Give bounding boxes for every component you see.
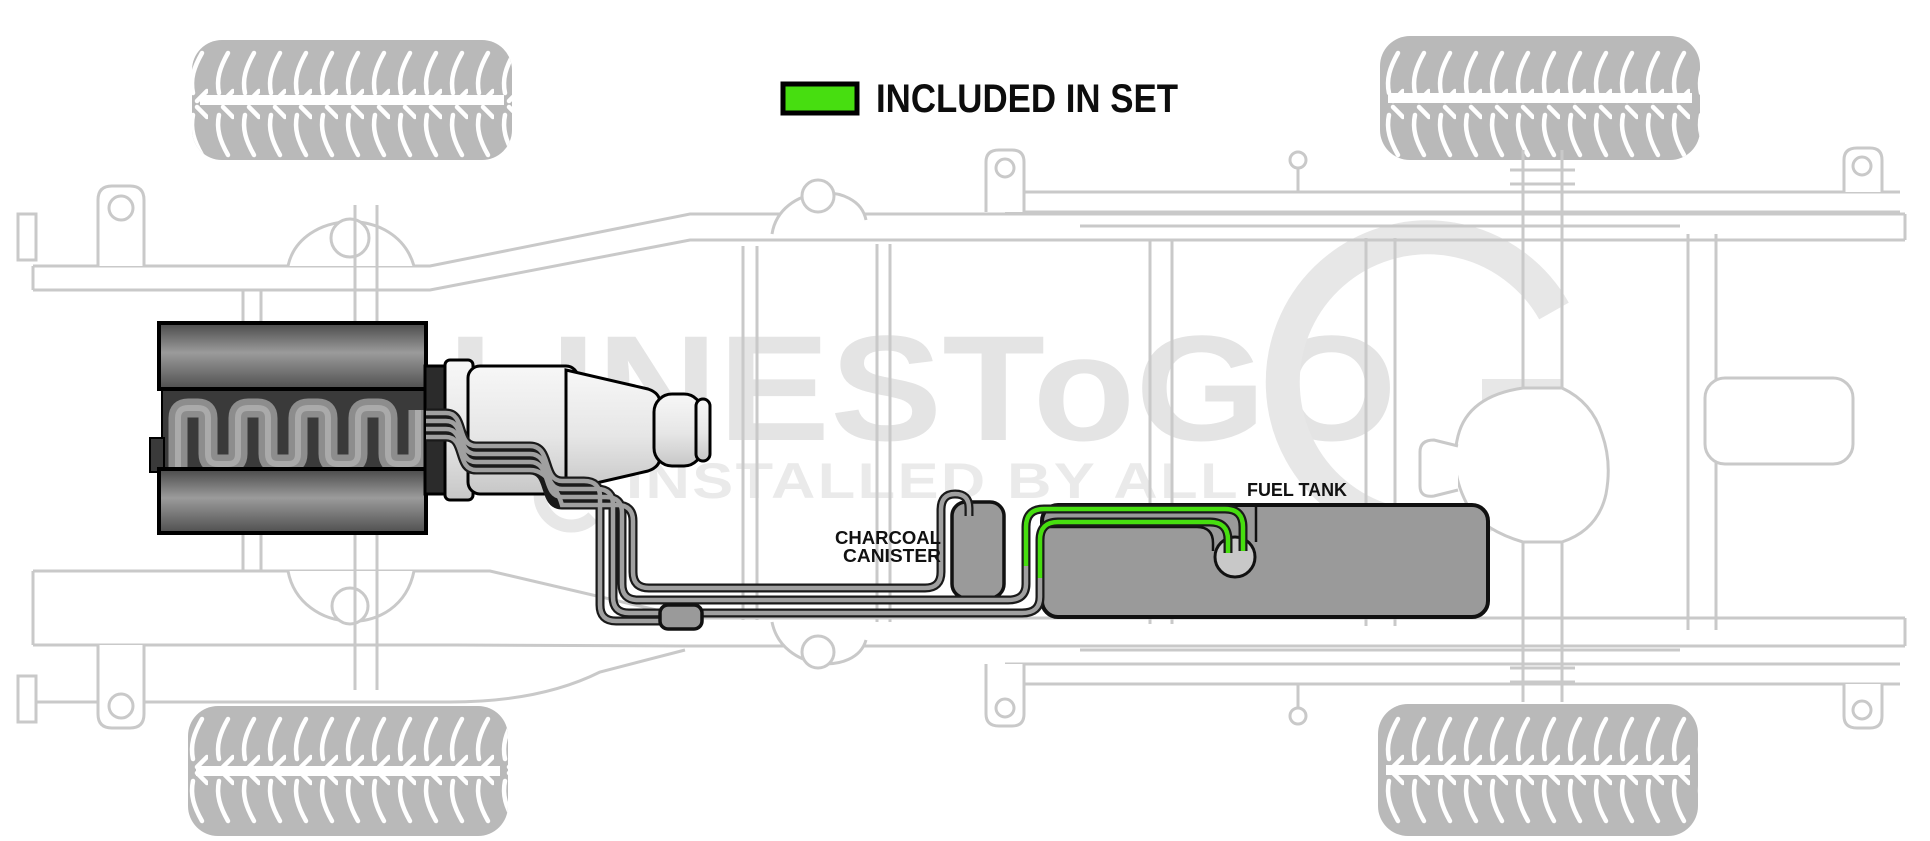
label-charcoal-canister-line2: CANISTER [843, 546, 941, 566]
tire-top-left [192, 40, 512, 160]
fuel-line-diagram: LINESToGO INSTALLED BY ALL [0, 0, 1930, 841]
engine-block [150, 323, 448, 533]
legend-swatch [783, 84, 857, 113]
fuel-sender [1215, 537, 1255, 577]
diagram-canvas: LINESToGO INSTALLED BY ALL [0, 0, 1930, 841]
valve-cover-top [159, 323, 426, 389]
fuel-line-clamp [660, 605, 702, 629]
label-charcoal-canister-line1: CHARCOAL [835, 528, 941, 548]
tire-bottom-right [1378, 704, 1698, 836]
legend: INCLUDED IN SET [783, 77, 1178, 121]
watermark-tagline: INSTALLED BY ALL [626, 453, 1240, 509]
tire-top-right [1380, 36, 1700, 160]
legend-label: INCLUDED IN SET [876, 77, 1178, 121]
label-fuel-tank: FUEL TANK [1247, 480, 1347, 500]
tire-bottom-left [188, 706, 508, 836]
charcoal-canister [952, 502, 1004, 598]
valve-cover-bottom [159, 469, 426, 533]
